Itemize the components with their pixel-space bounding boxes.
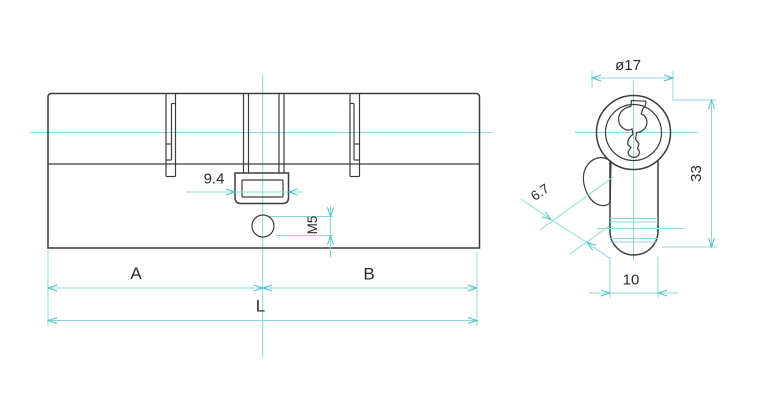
cam-bracket-outer: [235, 173, 289, 204]
keyhole-profile: [619, 101, 647, 158]
dim-label-profile-height: 33: [688, 165, 705, 182]
dim-label-l: L: [256, 297, 265, 316]
lock-cylinder-drawing: 9.4 M5 A B L: [0, 0, 777, 414]
end-view: ø17 33 10 6.7: [521, 57, 717, 298]
side-view: 9.4 M5 A B L: [30, 75, 492, 357]
cam-slot-walls: [244, 94, 285, 174]
technical-drawing-canvas: 9.4 M5 A B L: [0, 0, 777, 414]
dim-label-b: B: [363, 265, 374, 284]
dim-profile-width: 10: [589, 257, 679, 298]
dim-screw-thread: M5: [270, 206, 333, 258]
dim-label-a: A: [130, 264, 142, 283]
dim-label-plug-diameter: ø17: [615, 57, 641, 74]
dim-plug-diameter: ø17: [592, 57, 673, 101]
dim-label-cam-width: 9.4: [204, 171, 225, 188]
dim-cam-throw: 6.7: [521, 177, 613, 259]
dim-label-profile-width: 10: [623, 272, 640, 289]
dim-label-cam-throw: 6.7: [528, 181, 552, 204]
dim-profile-height: 33: [662, 100, 717, 247]
cylinder-body-outline: [48, 94, 480, 249]
dim-label-screw-thread: M5: [305, 216, 320, 235]
